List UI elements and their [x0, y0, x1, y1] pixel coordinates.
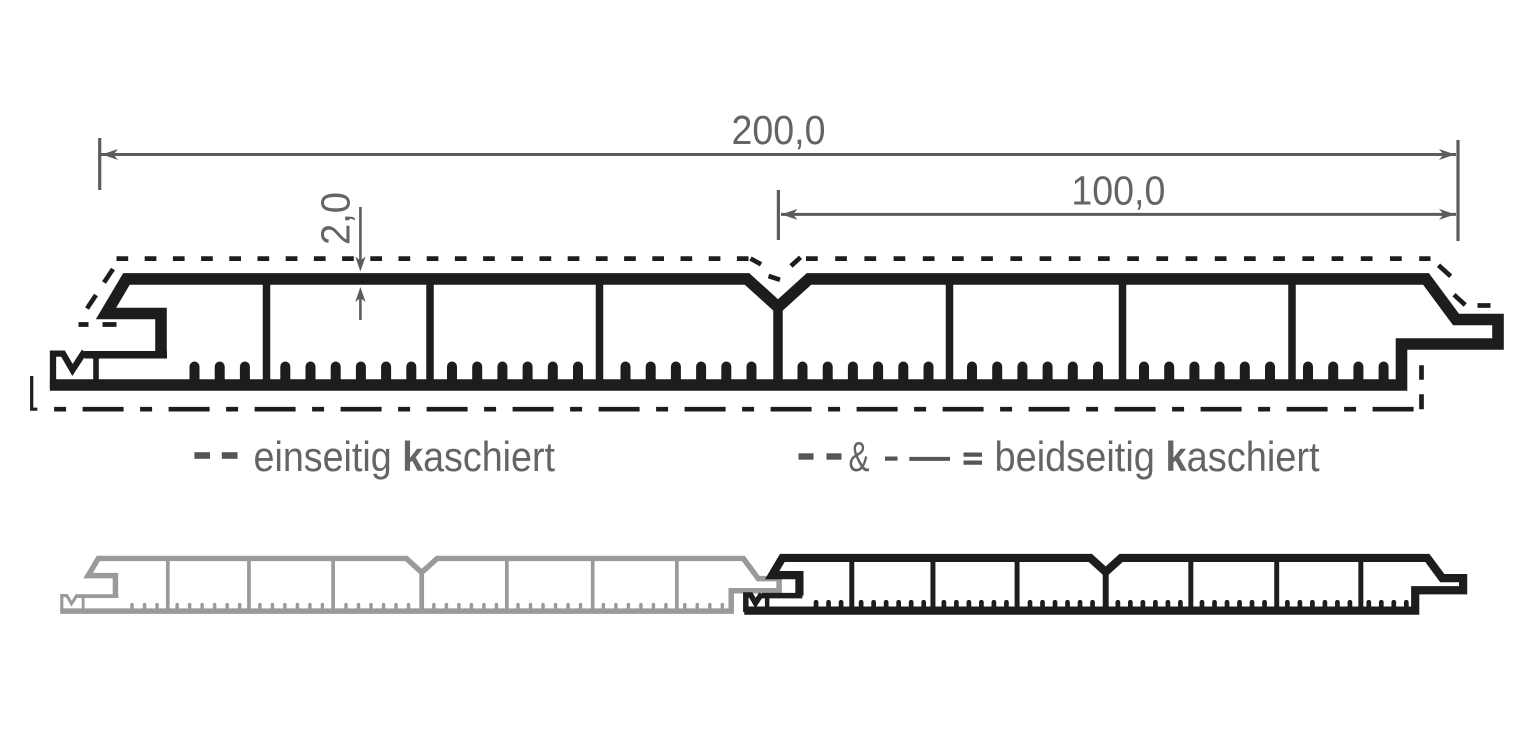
svg-text:beidseitig: beidseitig: [995, 433, 1155, 480]
svg-text:aschiert: aschiert: [423, 433, 555, 480]
svg-text:2,0: 2,0: [313, 192, 359, 245]
svg-text:einseitig: einseitig: [254, 433, 392, 480]
svg-text:&: &: [849, 433, 870, 480]
svg-text:aschiert: aschiert: [1187, 433, 1320, 480]
svg-text:100,0: 100,0: [1071, 168, 1165, 214]
svg-text:200,0: 200,0: [732, 107, 826, 153]
svg-text:k: k: [402, 433, 423, 480]
svg-text:k: k: [1166, 433, 1188, 480]
